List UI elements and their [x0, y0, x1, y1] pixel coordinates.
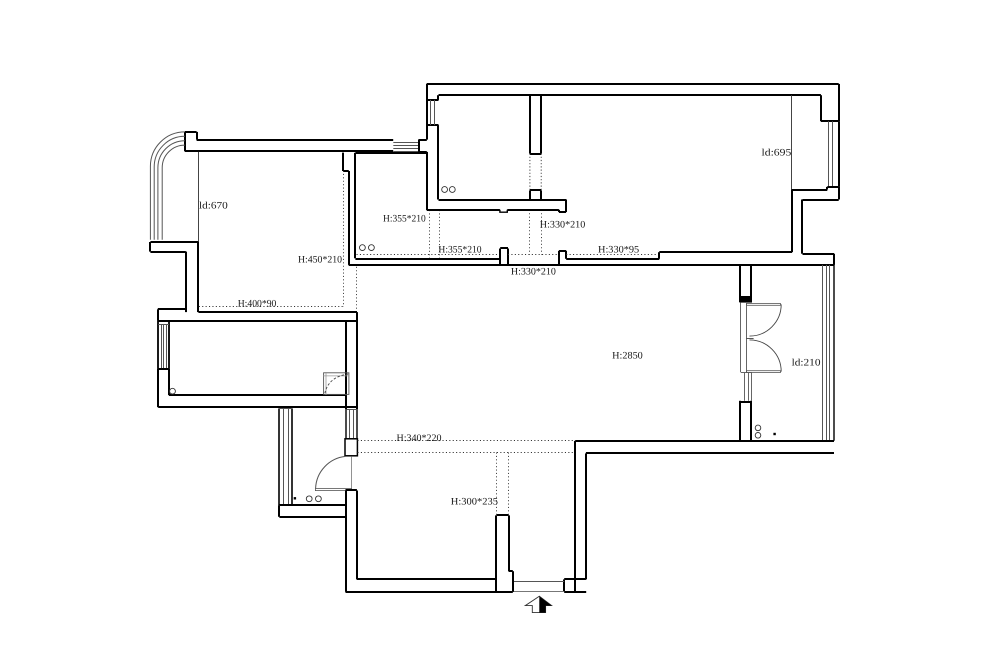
- svg-text:H:355*210: H:355*210: [438, 244, 481, 255]
- svg-text:ld:670: ld:670: [199, 201, 228, 212]
- svg-text:ld:695: ld:695: [762, 147, 792, 158]
- svg-text:H:400*90: H:400*90: [238, 298, 277, 309]
- svg-text:H:300*235: H:300*235: [451, 496, 498, 507]
- svg-text:H:330*95: H:330*95: [598, 245, 639, 256]
- svg-text:H:340*220: H:340*220: [397, 433, 442, 444]
- svg-text:H:2850: H:2850: [612, 351, 643, 362]
- svg-text:H:450*210: H:450*210: [298, 255, 342, 266]
- svg-text:H:330*210: H:330*210: [511, 267, 556, 278]
- svg-text:H:330*210: H:330*210: [540, 219, 586, 230]
- svg-text:ld:210: ld:210: [792, 358, 821, 369]
- svg-text:H:355*210: H:355*210: [383, 213, 426, 224]
